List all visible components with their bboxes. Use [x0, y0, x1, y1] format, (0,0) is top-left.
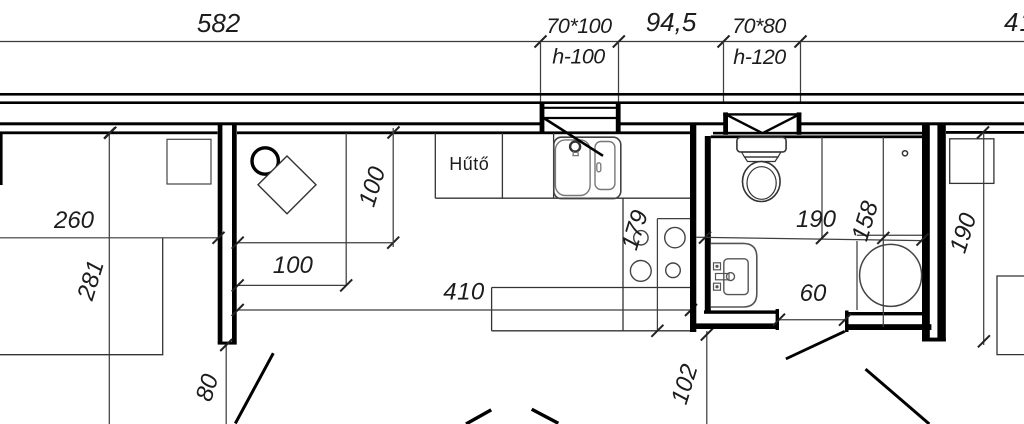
svg-text:h-100: h-100	[552, 45, 605, 69]
svg-text:410: 410	[1004, 7, 1024, 37]
svg-text:410: 410	[443, 279, 485, 306]
svg-text:582: 582	[197, 8, 241, 38]
svg-text:260: 260	[53, 207, 95, 234]
svg-text:Hűtő: Hűtő	[449, 154, 489, 174]
svg-text:100: 100	[273, 252, 314, 279]
svg-text:190: 190	[796, 206, 837, 233]
svg-text:h-120: h-120	[733, 45, 786, 69]
svg-text:94,5: 94,5	[646, 7, 697, 37]
svg-text:60: 60	[800, 280, 827, 307]
svg-text:70*100: 70*100	[546, 14, 612, 38]
svg-text:70*80: 70*80	[732, 14, 786, 38]
